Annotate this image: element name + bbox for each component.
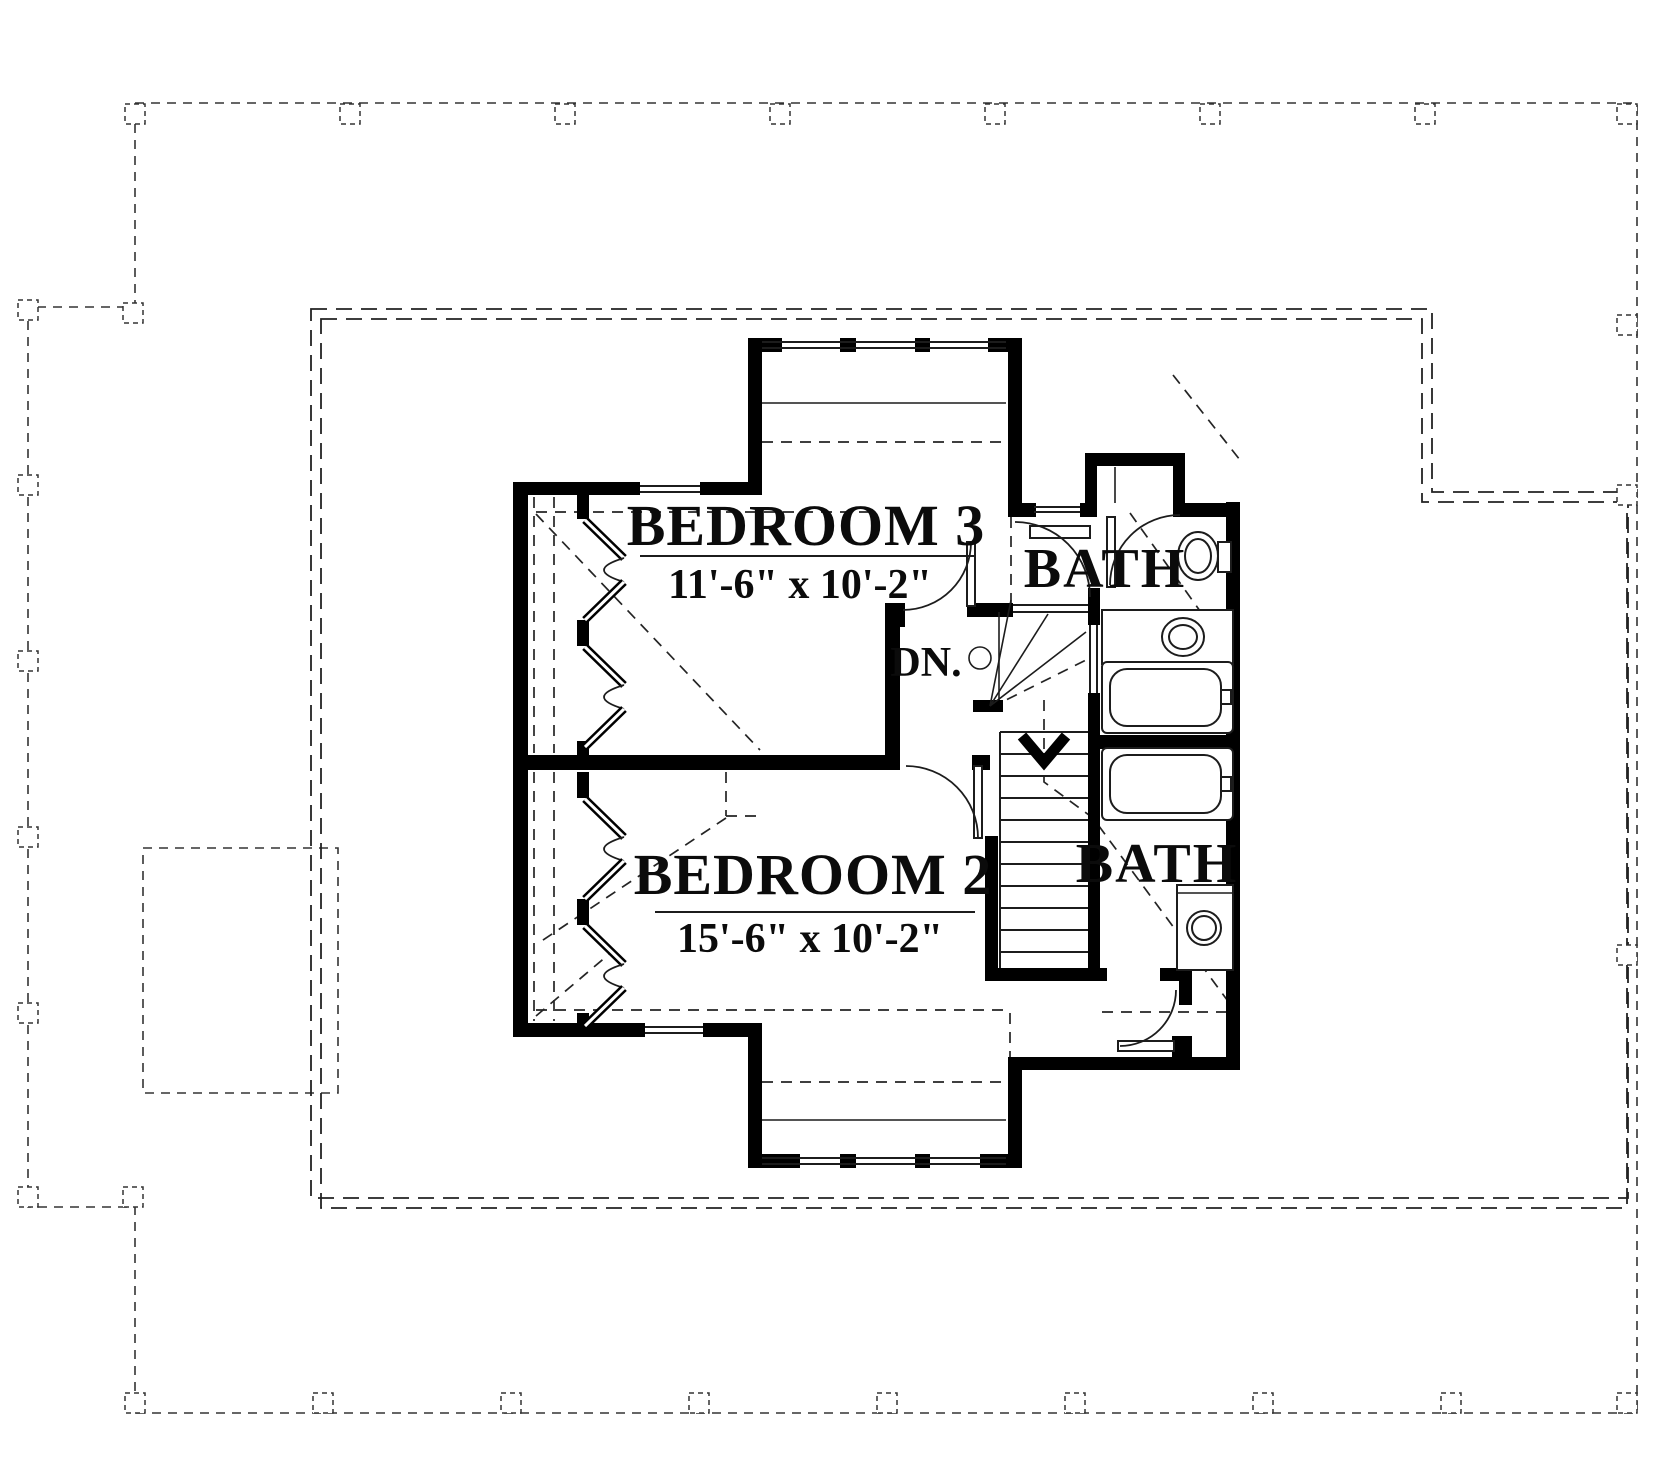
- bedroom2-label: BEDROOM 2: [634, 842, 993, 907]
- bath-bottom-label: BATH: [1076, 833, 1239, 895]
- stairs-down-label: DN.: [890, 640, 961, 686]
- lower-floor-outline: [311, 309, 1628, 1208]
- bedroom3-label: BEDROOM 3: [627, 493, 986, 558]
- bedroom2-dims: 15'-6" x 10'-2": [677, 916, 943, 962]
- bath-bottom-door-swing: [1120, 990, 1176, 1046]
- bath-top-label: BATH: [1024, 538, 1187, 600]
- bedroom2-door-swing: [906, 766, 978, 838]
- stair-newel-circle: [969, 647, 991, 669]
- closet-doors-bedroom3: [577, 495, 624, 757]
- bathtub-icon: [1102, 748, 1233, 820]
- porch-bumpout: [143, 848, 338, 1093]
- floor-plan-page: BEDROOM 3 11'-6" x 10'-2" BEDROOM 2 15'-…: [0, 0, 1672, 1476]
- closet-doors-bedroom2: [577, 772, 624, 1027]
- floor-plan-drawing: BEDROOM 3 11'-6" x 10'-2" BEDROOM 2 15'-…: [0, 0, 1672, 1476]
- round-sink-icon: [1177, 885, 1233, 970]
- bathtub-icon: [1102, 662, 1233, 733]
- stair-newel-post: [973, 700, 1003, 712]
- sink-icon: [1102, 610, 1233, 664]
- bedroom3-dims: 11'-6" x 10'-2": [668, 562, 932, 608]
